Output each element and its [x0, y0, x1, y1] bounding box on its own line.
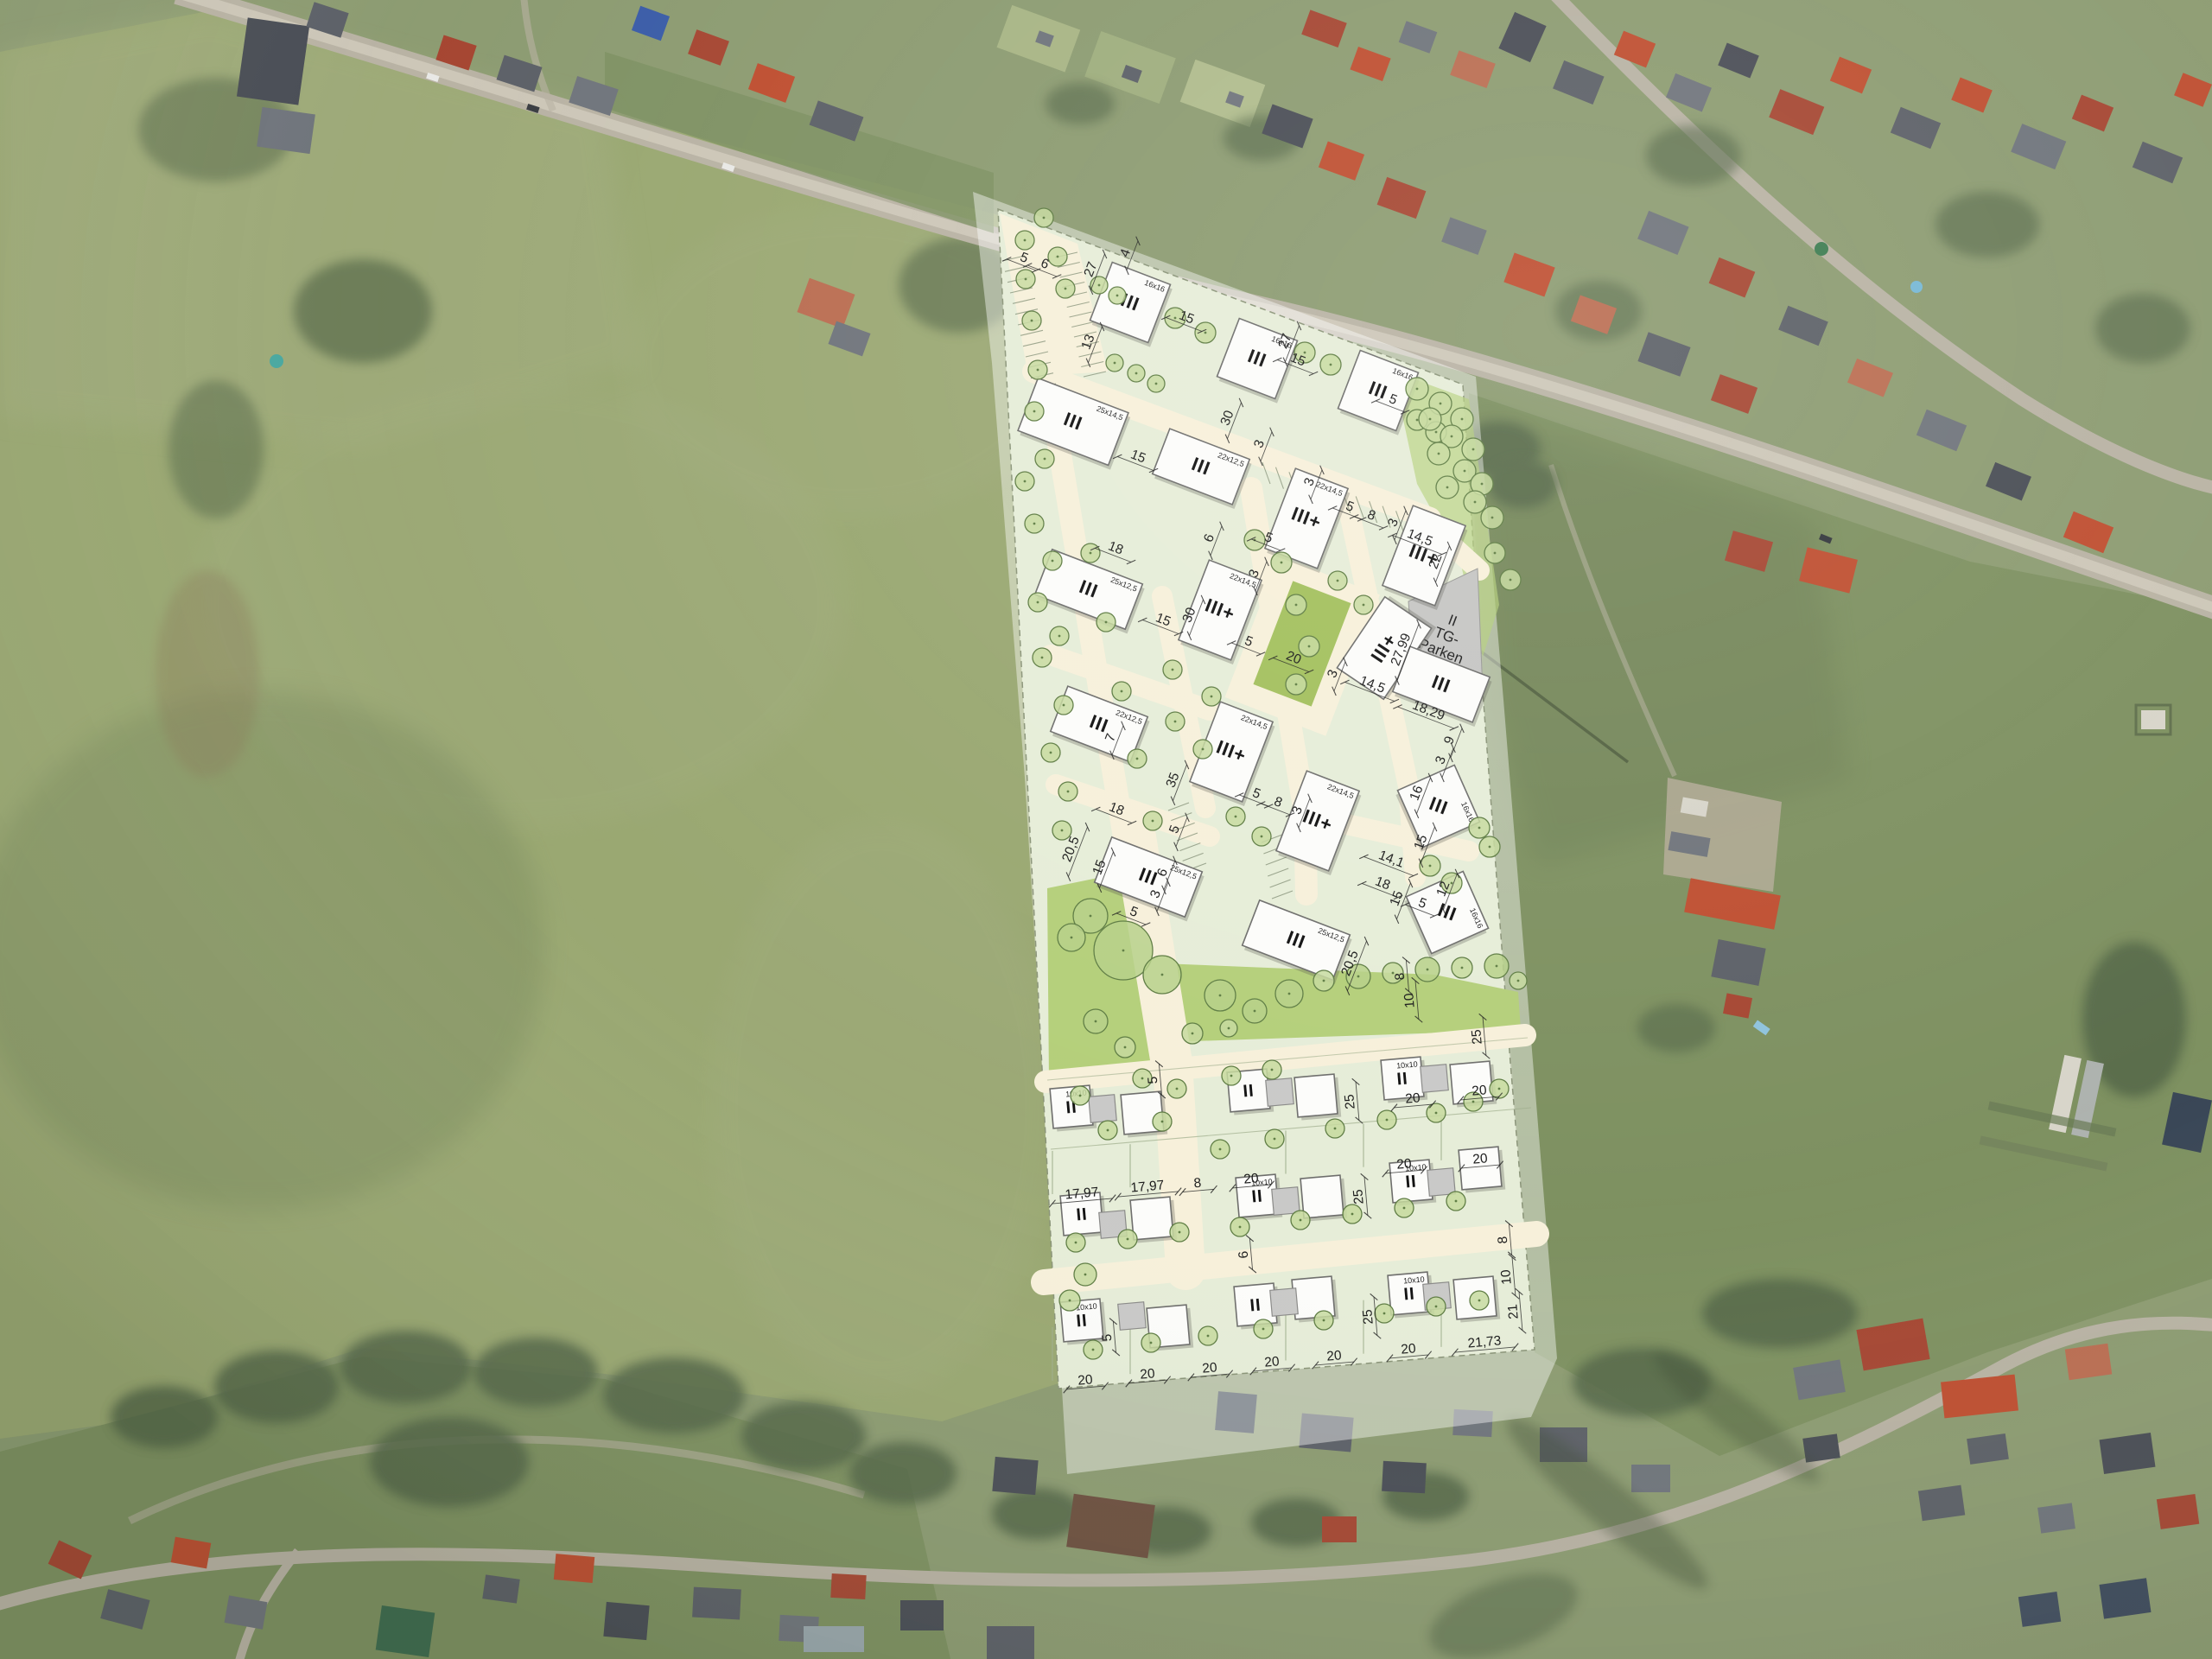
scene: IITG-Parken 16x16III16x16III16x16III25x1… [0, 0, 2212, 1659]
photo-vignette [0, 0, 2212, 1659]
aerial-map-view: IITG-Parken 16x16III16x16III16x16III25x1… [0, 0, 2212, 1659]
